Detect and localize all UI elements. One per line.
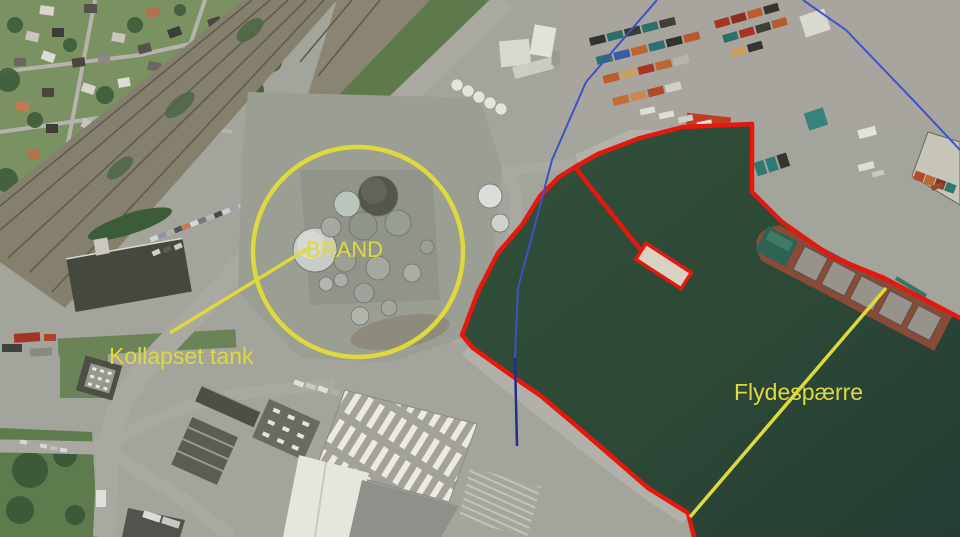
flydespaerre-label: Flydespærre	[734, 379, 863, 405]
aerial-map: BRAND Kollapset tank Flydespærre	[0, 0, 960, 537]
aerial-map-canvas: BRAND Kollapset tank Flydespærre	[0, 0, 960, 537]
kollapset-tank-label: Kollapset tank	[109, 343, 254, 369]
brand-label: BRAND	[306, 237, 383, 262]
